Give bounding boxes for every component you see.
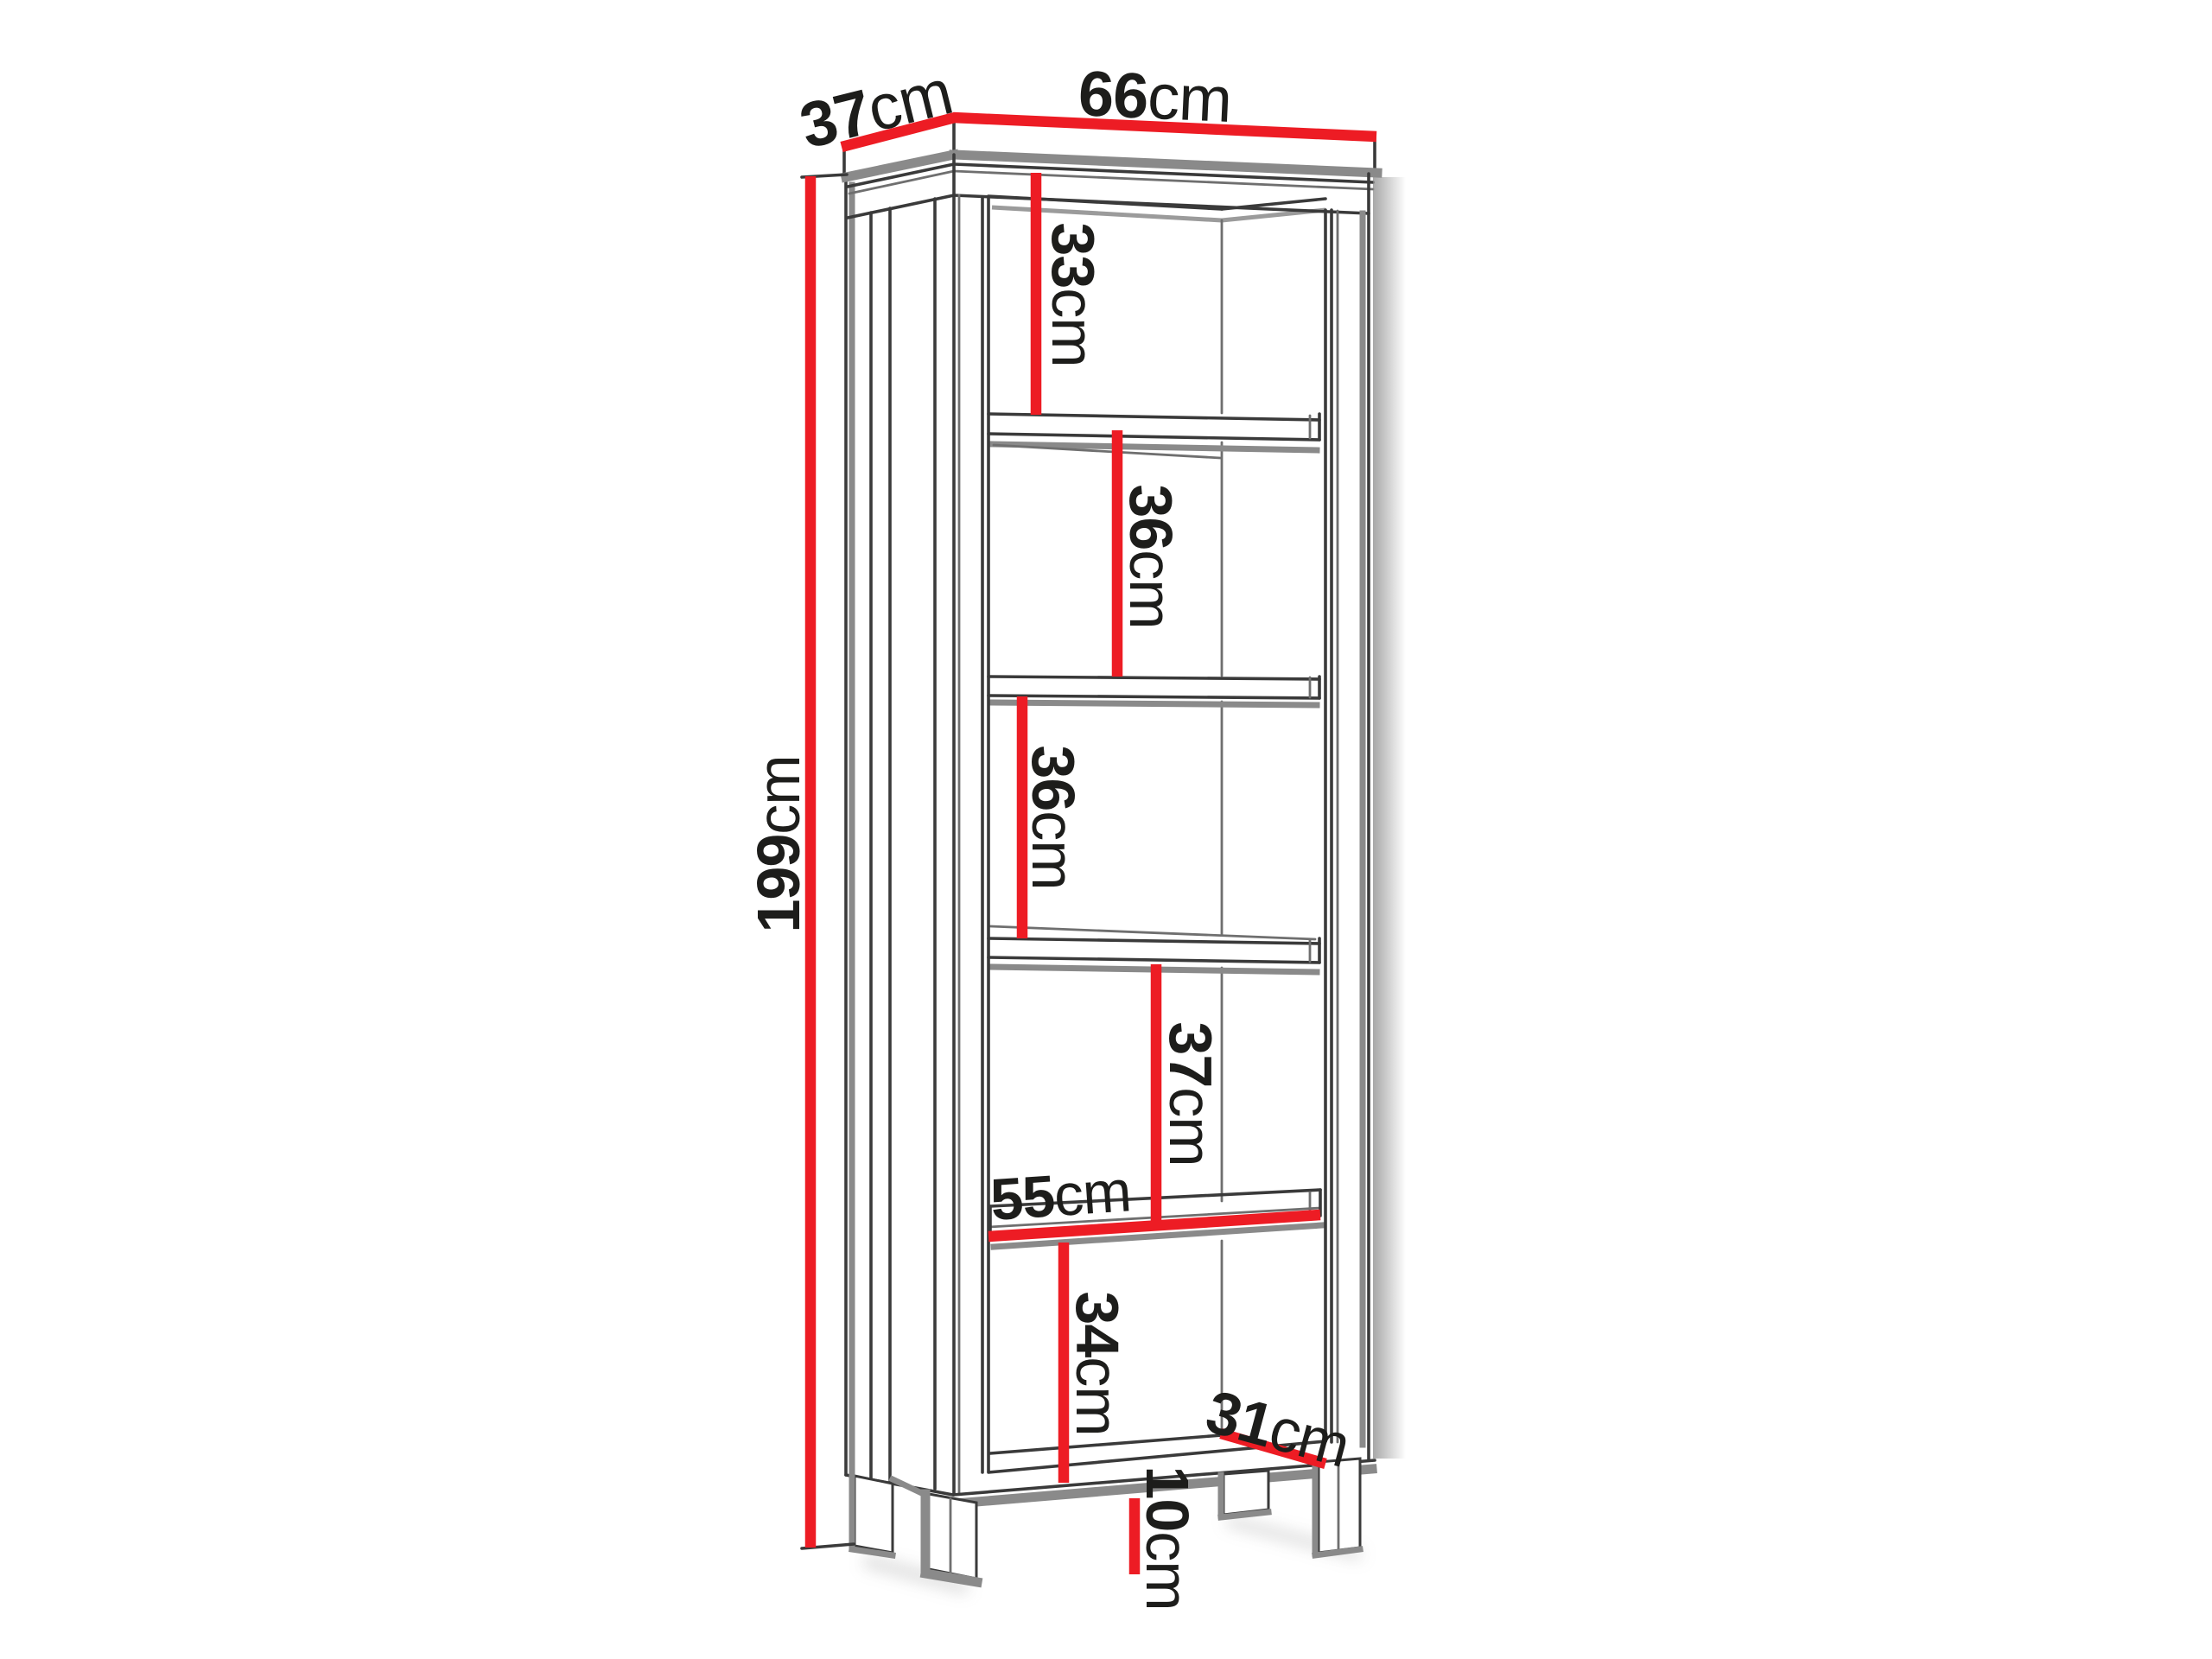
shelf-1 [988, 414, 1319, 458]
label-compartment-1: 33cm [1039, 222, 1107, 366]
shelf-2 [988, 677, 1319, 705]
front-left-leg [929, 1494, 976, 1579]
label-shelf-width: 55cm [988, 1158, 1133, 1233]
label-compartment-2: 36cm [1117, 484, 1185, 628]
left-side-panel [846, 176, 953, 1495]
dimension-labels: 37cm 66cm 199cm 33cm 36cm 36cm 37cm 55cm… [745, 55, 1357, 1610]
bookcase-dimension-diagram: 37cm 66cm 199cm 33cm 36cm 36cm 37cm 55cm… [0, 0, 2212, 1659]
back-left-leg [855, 1476, 893, 1553]
label-compartment-4: 37cm [1157, 1021, 1224, 1166]
label-height: 199cm [745, 755, 812, 932]
crown-bottom [848, 195, 954, 218]
label-leg-height: 10cm [1134, 1465, 1201, 1610]
label-compartment-3: 36cm [1020, 745, 1087, 889]
label-top-depth: 37cm [793, 55, 959, 162]
right-edge-fade [1373, 177, 1406, 1459]
ceiling-shadow [992, 207, 1222, 220]
back-right-leg [1224, 1471, 1268, 1515]
label-top-width: 66cm [1077, 57, 1233, 136]
diagram-canvas: 37cm 66cm 199cm 33cm 36cm 36cm 37cm 55cm… [0, 0, 2212, 1659]
label-compartment-5: 34cm [1064, 1291, 1131, 1435]
floor-back-edge [990, 1435, 1222, 1453]
top-slab-underside [954, 155, 1377, 173]
